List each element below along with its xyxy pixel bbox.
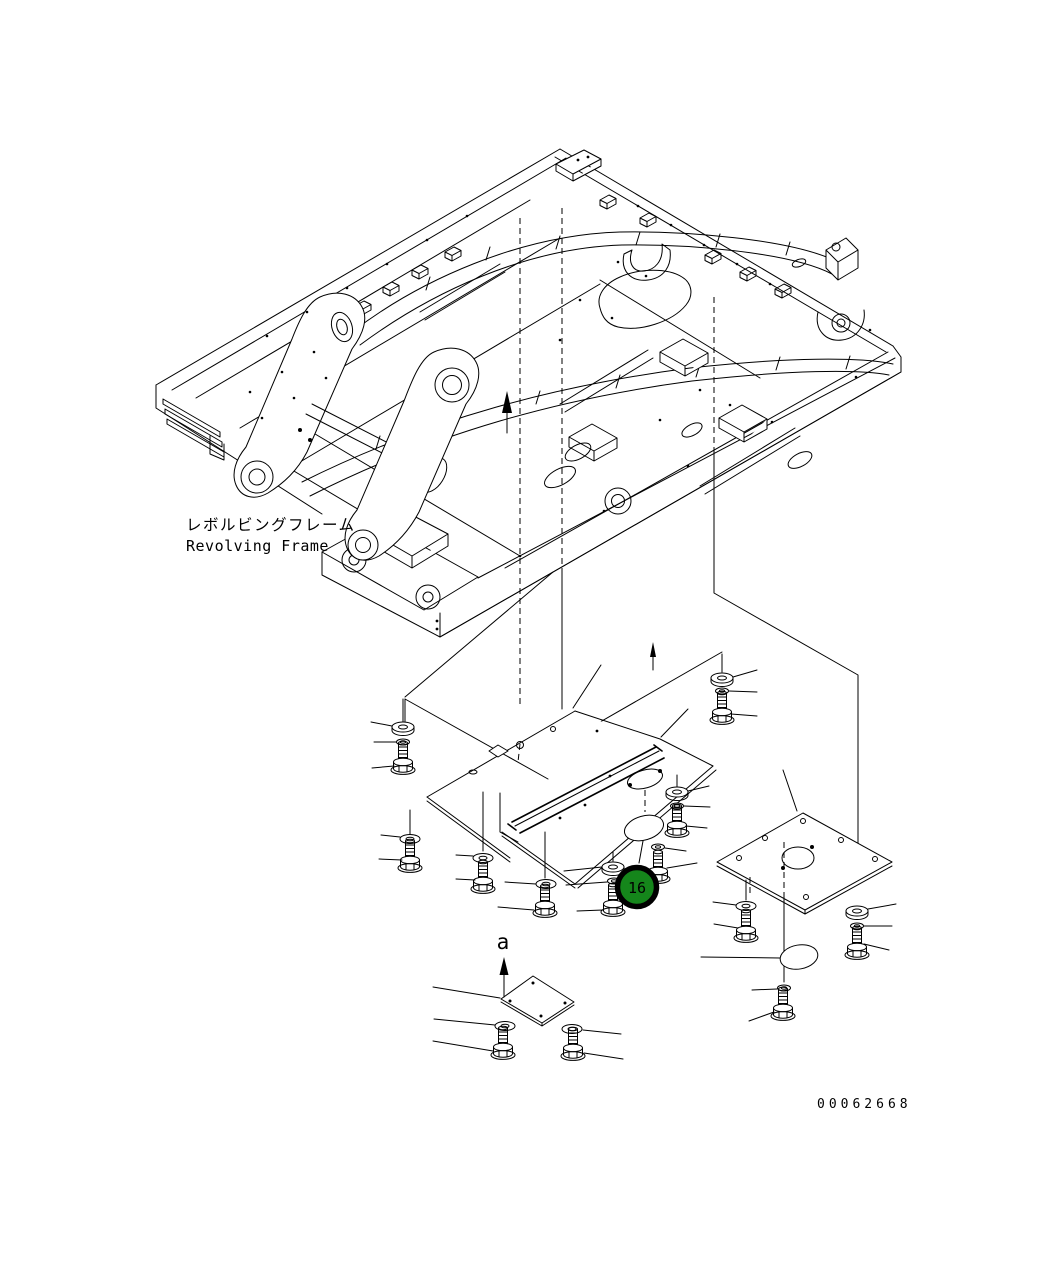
section-arrow-label: a <box>497 930 510 954</box>
frame-label-english: Revolving Frame <box>186 537 329 555</box>
fastener-group-h <box>710 673 734 724</box>
fastener-group-a <box>391 722 415 774</box>
callout-badge-16[interactable]: 16 <box>618 868 657 907</box>
section-arrow-top <box>502 391 512 433</box>
fastener-group-l1 <box>491 1022 515 1060</box>
parts-diagram-canvas: 16 a レボルビングフレーム Revolving Frame 00062668 <box>0 0 1055 1262</box>
diagram-page: 16 a レボルビングフレーム Revolving Frame 00062668 <box>0 0 1055 1262</box>
frame-label-japanese: レボルビングフレーム <box>186 516 356 534</box>
fastener-group-c <box>471 854 495 894</box>
right-cover-plate <box>717 813 892 914</box>
fastener-group-k <box>845 906 869 959</box>
callout-number: 16 <box>628 879 646 897</box>
small-cover-plate <box>501 976 574 1026</box>
fastener-group-j <box>771 985 795 1020</box>
revolving-frame-drawing <box>156 149 901 670</box>
mini-arrow <box>650 642 656 670</box>
fastener-group-b <box>398 835 422 873</box>
fastener-group-d <box>533 880 557 918</box>
fastener-group-g <box>665 787 689 837</box>
fastener-group-i <box>734 902 758 943</box>
fastener-group-l2 <box>561 1025 585 1061</box>
drawing-number: 00062668 <box>817 1097 912 1112</box>
section-arrow-bottom: a <box>497 930 510 997</box>
